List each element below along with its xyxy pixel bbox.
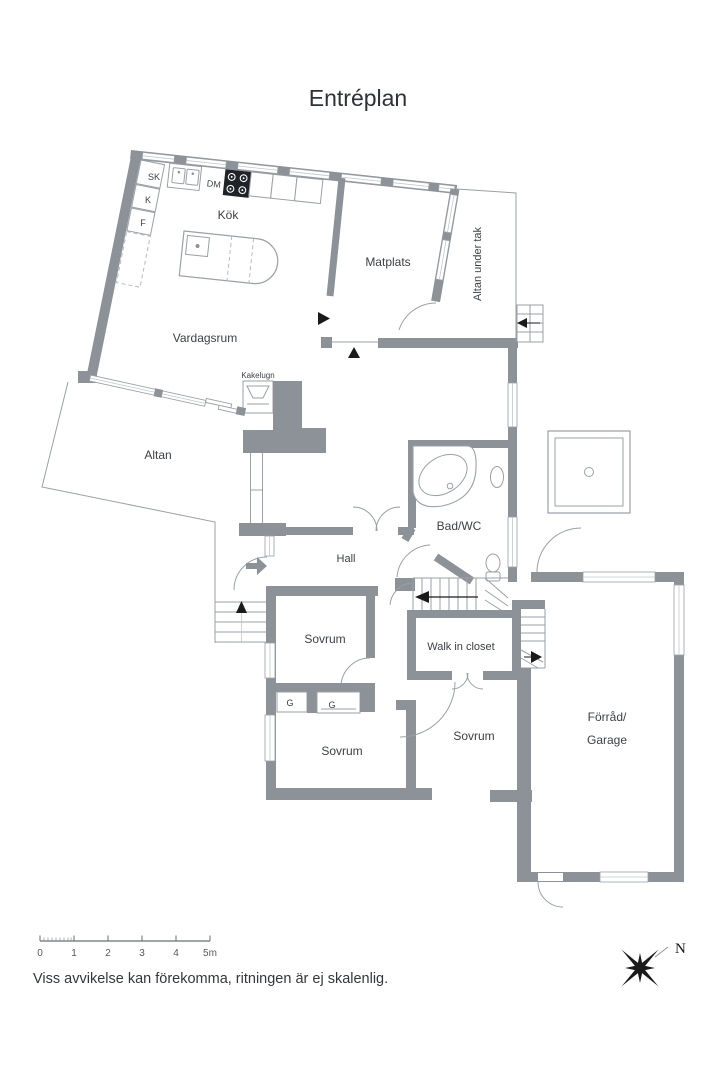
room-label-forrad: Förråd/ xyxy=(588,710,627,724)
top-window-wall: DM xyxy=(127,150,457,220)
altan-under-tak-outline xyxy=(457,189,516,338)
closet-g1-label: G xyxy=(286,698,293,708)
hall: Hall xyxy=(266,507,415,605)
bedroom-block: Sovrum G G Sovrum Sovrum xyxy=(265,586,532,802)
cabinet-k-label: K xyxy=(145,195,151,205)
scale-bar: 0 1 2 3 4 5m xyxy=(37,936,217,960)
double-door-sovrum3-right xyxy=(467,673,483,689)
garage-stair xyxy=(521,609,545,668)
matplats-window-wall xyxy=(431,188,459,302)
double-door-arc-left xyxy=(353,507,377,531)
room-label-altan: Altan xyxy=(144,448,171,462)
scale-tick-5: 5m xyxy=(203,948,217,959)
door-arc-sovrum1 xyxy=(341,658,370,687)
sink-icon xyxy=(491,467,504,488)
garage: Förråd/ Garage xyxy=(517,528,684,907)
room-label-garage: Garage xyxy=(587,733,627,747)
room-label-matplats: Matplats xyxy=(365,255,410,269)
scale-tick-4: 4 xyxy=(173,948,179,959)
garage-stair-arrow-icon xyxy=(531,651,542,663)
entry-arrow-icon xyxy=(246,557,267,575)
room-label-sovrum-2: Sovrum xyxy=(321,744,362,758)
wall-pillar xyxy=(321,337,332,348)
door-arc-matplats xyxy=(399,303,436,330)
scale-tick-2: 2 xyxy=(105,948,111,959)
left-exterior-wall xyxy=(91,152,137,379)
step-arrow-right-icon xyxy=(318,312,330,325)
square-feature xyxy=(548,431,630,513)
floor-plan-drawing: Entréplan xyxy=(0,0,720,1080)
cabinet-sk-label: SK xyxy=(148,172,160,182)
bathroom: Bad/WC xyxy=(397,440,508,581)
garage-bottom-door-arc xyxy=(538,882,563,907)
room-label-altan-under-tak: Altan under tak xyxy=(472,227,484,301)
room-label-wic: Walk in closet xyxy=(427,641,494,653)
compass-icon: N xyxy=(622,941,686,986)
garage-top-door-arc xyxy=(537,528,581,572)
room-label-hall: Hall xyxy=(337,553,356,565)
outdoor-steps-east xyxy=(517,305,543,342)
door-arc-bathroom xyxy=(397,545,430,577)
disclaimer-text: Viss avvikelse kan förekomma, ritningen … xyxy=(33,971,388,987)
kakelugn-label: Kakelugn xyxy=(241,371,274,380)
altan-outline xyxy=(42,382,215,643)
matplats-south-wall xyxy=(378,338,518,348)
stair-wic-block: Walk in closet xyxy=(407,578,545,680)
stove-icon xyxy=(223,169,252,198)
entry-steps xyxy=(215,601,268,643)
livingroom-window-band xyxy=(89,373,246,416)
double-door-arc-right xyxy=(376,507,400,531)
room-label-kok: Kök xyxy=(218,208,240,222)
step-arrow-up2-icon xyxy=(348,347,360,358)
divider-wall xyxy=(330,178,342,296)
dishwasher-label: DM xyxy=(206,178,221,189)
room-label-bad-wc: Bad/WC xyxy=(437,519,482,533)
toilet-icon xyxy=(486,554,500,572)
north-label: N xyxy=(675,941,686,957)
room-label-sovrum-3: Sovrum xyxy=(453,729,494,743)
floor-plan-page: Entréplan xyxy=(0,0,720,1080)
room-label-sovrum-1: Sovrum xyxy=(304,632,345,646)
step-arrow-up-icon xyxy=(236,601,247,613)
scale-tick-0: 0 xyxy=(37,948,43,959)
scale-tick-1: 1 xyxy=(71,948,77,959)
cabinet-f-label: F xyxy=(140,218,146,228)
page-title: Entréplan xyxy=(309,85,407,111)
closet-g2-label: G xyxy=(328,700,335,710)
kitchen-island xyxy=(179,231,280,286)
scale-tick-3: 3 xyxy=(139,948,145,959)
room-label-vardagsrum: Vardagsrum xyxy=(173,331,237,345)
